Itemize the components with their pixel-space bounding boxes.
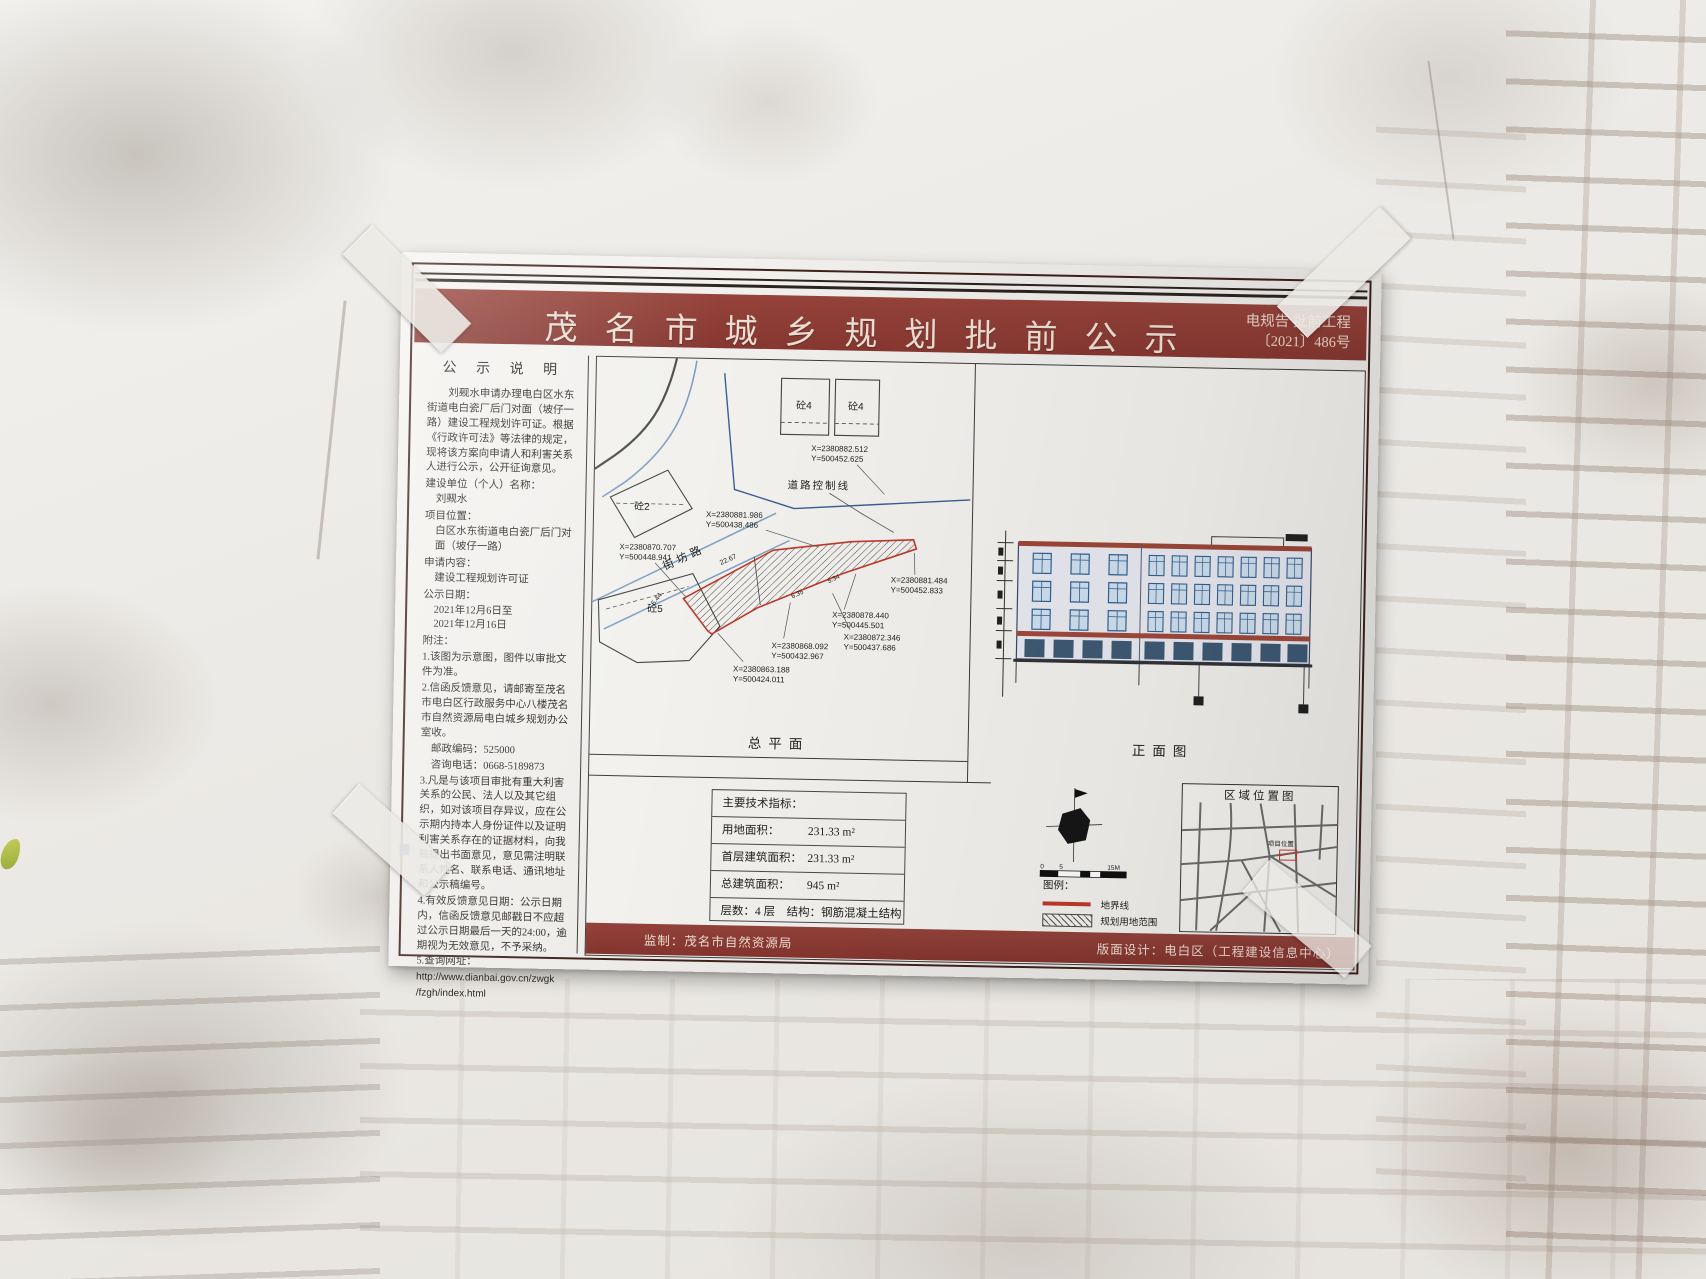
tech-title-row: 主要技术指标：	[712, 790, 905, 821]
note-2: 2.信函反馈意见，请邮寄至茂名市电白区行政服务中心八楼茂名市自然资源局电白城乡规…	[421, 682, 574, 745]
tech-title: 主要技术指标：	[722, 797, 803, 811]
project-location-marker: 项目位置	[1268, 839, 1295, 849]
planning-notice-poster: 茂名市城乡规划批前公示 电规告 批前工程 〔2021〕486号 公 示 说 明 …	[388, 252, 1382, 985]
field-content-value: 建设工程规划许可证	[424, 571, 576, 589]
scale-label-0: 0	[1040, 863, 1044, 870]
panel-divider-horizontal-2	[589, 775, 991, 784]
technical-indicators-table: 主要技术指标： 用地面积： 231.33 m² 首层建筑面积： 231.33 m…	[709, 789, 906, 925]
coord-5-y: Y=500445.501	[832, 620, 885, 630]
coord-8-y: Y=500424.011	[733, 674, 785, 684]
tech-row-firstfloor: 首层建筑面积： 231.33 m²	[711, 844, 904, 875]
planned-area-swatch	[1042, 913, 1092, 927]
coord-3-y: Y=500448.941	[619, 552, 672, 562]
coord-3-x: X=2380870.707	[619, 542, 676, 552]
field-date-value2: 2021年12月16日	[423, 618, 575, 636]
building-b2-group: 砼2	[610, 469, 693, 539]
explanation-paragraph: 刘觋水申请办理电白区水东街道电白瓷厂后门对面（坡仔一路）建设工程规划许可证。根据…	[426, 386, 580, 478]
coord-4-x: X=2380881.484	[891, 575, 948, 585]
scale-label-15m: 15M	[1107, 865, 1120, 872]
tech-land-label: 用地面积：	[722, 824, 780, 837]
tech-land-value: 231.33 m²	[808, 819, 855, 846]
legend-boundary-row: 地界线	[1042, 897, 1182, 912]
tech-firstfloor-label: 首层建筑面积：	[721, 851, 802, 865]
anchor-mark	[1298, 704, 1308, 713]
legend-area-label: 规划用地范围	[1100, 914, 1157, 929]
coord-2-x: X=2380881.986	[706, 510, 763, 520]
anchor-mark	[1193, 696, 1203, 705]
notice-url-line1: http://www.dianbai.gov.cn/zwgk	[416, 971, 568, 988]
notes-title: 附注：	[422, 635, 574, 653]
note-5: 5.查询网址：	[416, 955, 568, 973]
note-1: 1.该图为示意图，图件以审批文件为准。	[422, 651, 575, 684]
tech-total-label: 总建筑面积：	[721, 878, 790, 891]
building-b2-label: 砼2	[634, 500, 650, 513]
ladder-marks	[996, 548, 1003, 649]
tech-row-floors-structure: 层数：4 层 结构：钢筋混凝土结构	[710, 898, 903, 928]
road-line-dark	[595, 357, 677, 471]
site-plan-drawing: 砼4 砼4 街坊路 道路控制线 砼2 砼5	[589, 357, 975, 776]
coord-6-y: Y=500437.686	[843, 643, 896, 653]
tech-firstfloor-value: 231.33 m²	[807, 846, 854, 873]
coord-7-y: Y=500432.967	[771, 651, 824, 661]
elevation-drawing	[967, 364, 1365, 783]
footing-lines	[1016, 662, 1310, 705]
coord-7-x: X=2380868.092	[771, 641, 828, 651]
footer-supervisor: 监制：茂名市自然资源局	[644, 930, 793, 952]
notice-url-line2: /fzgh/index.html	[416, 986, 568, 1003]
legend-title: 图例：	[1043, 877, 1075, 893]
note-postcode: 邮政编码：525000	[420, 742, 572, 760]
control-line-label: 道路控制线	[787, 478, 850, 492]
dimension-ladder	[995, 530, 1014, 696]
explanation-heading: 公 示 说 明	[428, 359, 580, 382]
scale-label-5: 5	[1059, 864, 1063, 871]
boundary-line-swatch	[1043, 901, 1091, 905]
building-facade	[1013, 529, 1314, 668]
field-unit-value: 刘觋水	[425, 493, 577, 511]
coord-5-x: X=2380878.440	[832, 610, 889, 620]
building-b4b-label: 砼4	[848, 400, 864, 413]
field-location-value: 白区水东街道电白瓷厂后门对面（坡仔一路）	[424, 525, 577, 558]
road-line-blue	[602, 359, 697, 499]
tech-floors-structure: 层数：4 层 结构：钢筋混凝土结构	[720, 905, 901, 920]
drawings-panel: 砼4 砼4 街坊路 道路控制线 砼2 砼5	[585, 356, 1366, 971]
dim-2267: 22.67	[719, 553, 738, 567]
north-compass-icon	[1045, 785, 1102, 864]
tech-row-total: 总建筑面积： 945 m²	[711, 871, 904, 902]
tech-row-land: 用地面积： 231.33 m²	[712, 817, 905, 848]
doc-number-line2: 〔2021〕486号	[1245, 332, 1350, 354]
brick-texture-bottom	[360, 979, 1706, 1279]
coord-1-y: Y=500452.625	[811, 454, 864, 464]
coord-2-y: Y=500438.486	[706, 520, 759, 530]
building-b4a-label: 砼4	[796, 399, 812, 412]
brick-texture-left-bottom	[0, 919, 380, 1279]
building-b4-group: 砼4 砼4	[781, 378, 880, 436]
coord-1-x: X=2380882.512	[811, 444, 868, 454]
tech-total-value: 945 m²	[807, 873, 840, 900]
coord-4-y: Y=500452.833	[891, 585, 944, 595]
note-phone: 咨询电话：0668-5189873	[420, 758, 572, 776]
note-4: 4.有效反馈意见日期：公示日期内，信函反馈意见邮戳日不应超过公示日期最后一天的2…	[417, 894, 570, 957]
control-line-leader	[829, 493, 895, 532]
legend-boundary-label: 地界线	[1100, 898, 1129, 913]
coord-8-x: X=2380863.188	[733, 664, 790, 674]
coord-6-x: X=2380872.346	[844, 633, 901, 643]
